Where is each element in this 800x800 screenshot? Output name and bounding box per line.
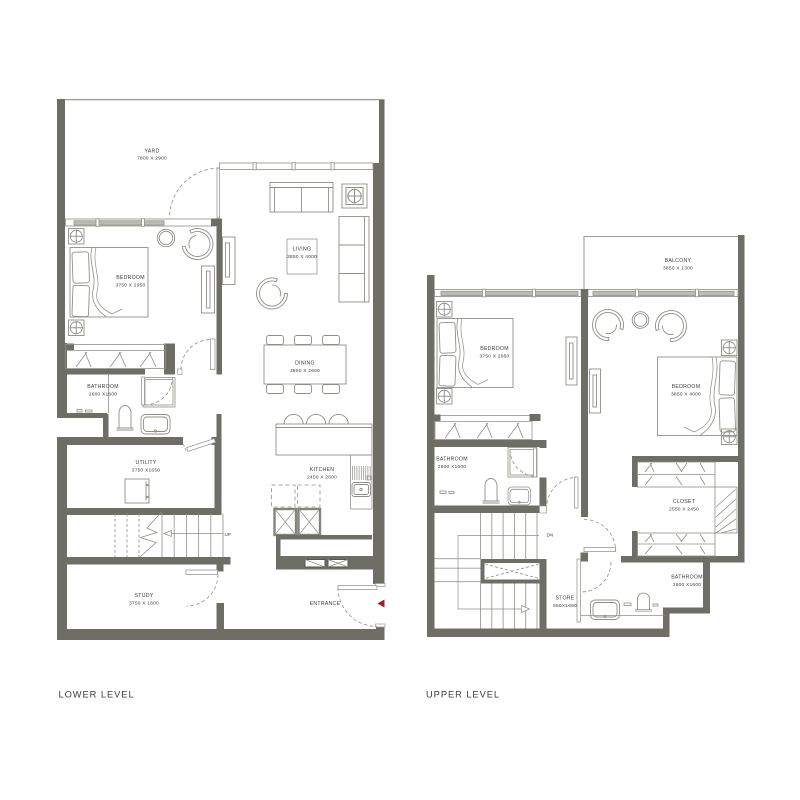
svg-text:2600 X1600: 2600 X1600	[89, 392, 117, 398]
svg-text:2600 X1600: 2600 X1600	[438, 464, 466, 470]
svg-text:BEDROOM: BEDROOM	[116, 275, 145, 281]
svg-text:CLOSET: CLOSET	[673, 499, 696, 505]
svg-text:3850 X 4000: 3850 X 4000	[671, 392, 701, 398]
svg-text:950X1650: 950X1650	[553, 603, 577, 609]
svg-text:UP: UP	[225, 532, 231, 537]
svg-text:BALCONY: BALCONY	[665, 258, 692, 264]
svg-text:3750 X1650: 3750 X1650	[132, 468, 160, 474]
svg-text:UTILITY: UTILITY	[135, 460, 156, 466]
svg-text:BATHROOM: BATHROOM	[671, 575, 703, 581]
svg-text:BEDROOM: BEDROOM	[480, 346, 509, 352]
svg-text:STORE: STORE	[555, 596, 574, 602]
svg-text:3750 X 2950: 3750 X 2950	[480, 354, 510, 360]
svg-text:UPPER LEVEL: UPPER LEVEL	[426, 690, 500, 700]
svg-text:BATHROOM: BATHROOM	[87, 384, 119, 390]
svg-text:7800 X 2900: 7800 X 2900	[137, 156, 167, 162]
svg-text:2450 X 2600: 2450 X 2600	[307, 475, 337, 481]
svg-text:2600 X1600: 2600 X1600	[673, 582, 701, 588]
svg-text:3850 X 1300: 3850 X 1300	[663, 266, 693, 272]
svg-text:2550 X 2450: 2550 X 2450	[669, 507, 699, 513]
svg-text:DINING: DINING	[295, 361, 315, 367]
svg-text:3750 X 1600: 3750 X 1600	[129, 601, 159, 607]
svg-text:STUDY: STUDY	[135, 593, 154, 599]
svg-text:LIVING: LIVING	[293, 247, 312, 253]
svg-text:BEDROOM: BEDROOM	[672, 384, 701, 390]
svg-text:KITCHEN: KITCHEN	[310, 467, 335, 473]
svg-text:LOWER LEVEL: LOWER LEVEL	[59, 690, 135, 700]
svg-text:3750 X 2950: 3750 X 2950	[116, 283, 146, 289]
svg-text:DN: DN	[547, 533, 554, 538]
svg-text:3850 X 2600: 3850 X 2600	[290, 368, 320, 374]
svg-text:BATHROOM: BATHROOM	[436, 457, 468, 463]
svg-text:3850 X 4000: 3850 X 4000	[287, 254, 317, 260]
svg-text:YARD: YARD	[144, 149, 159, 155]
svg-text:ENTRANCE: ENTRANCE	[310, 601, 341, 607]
